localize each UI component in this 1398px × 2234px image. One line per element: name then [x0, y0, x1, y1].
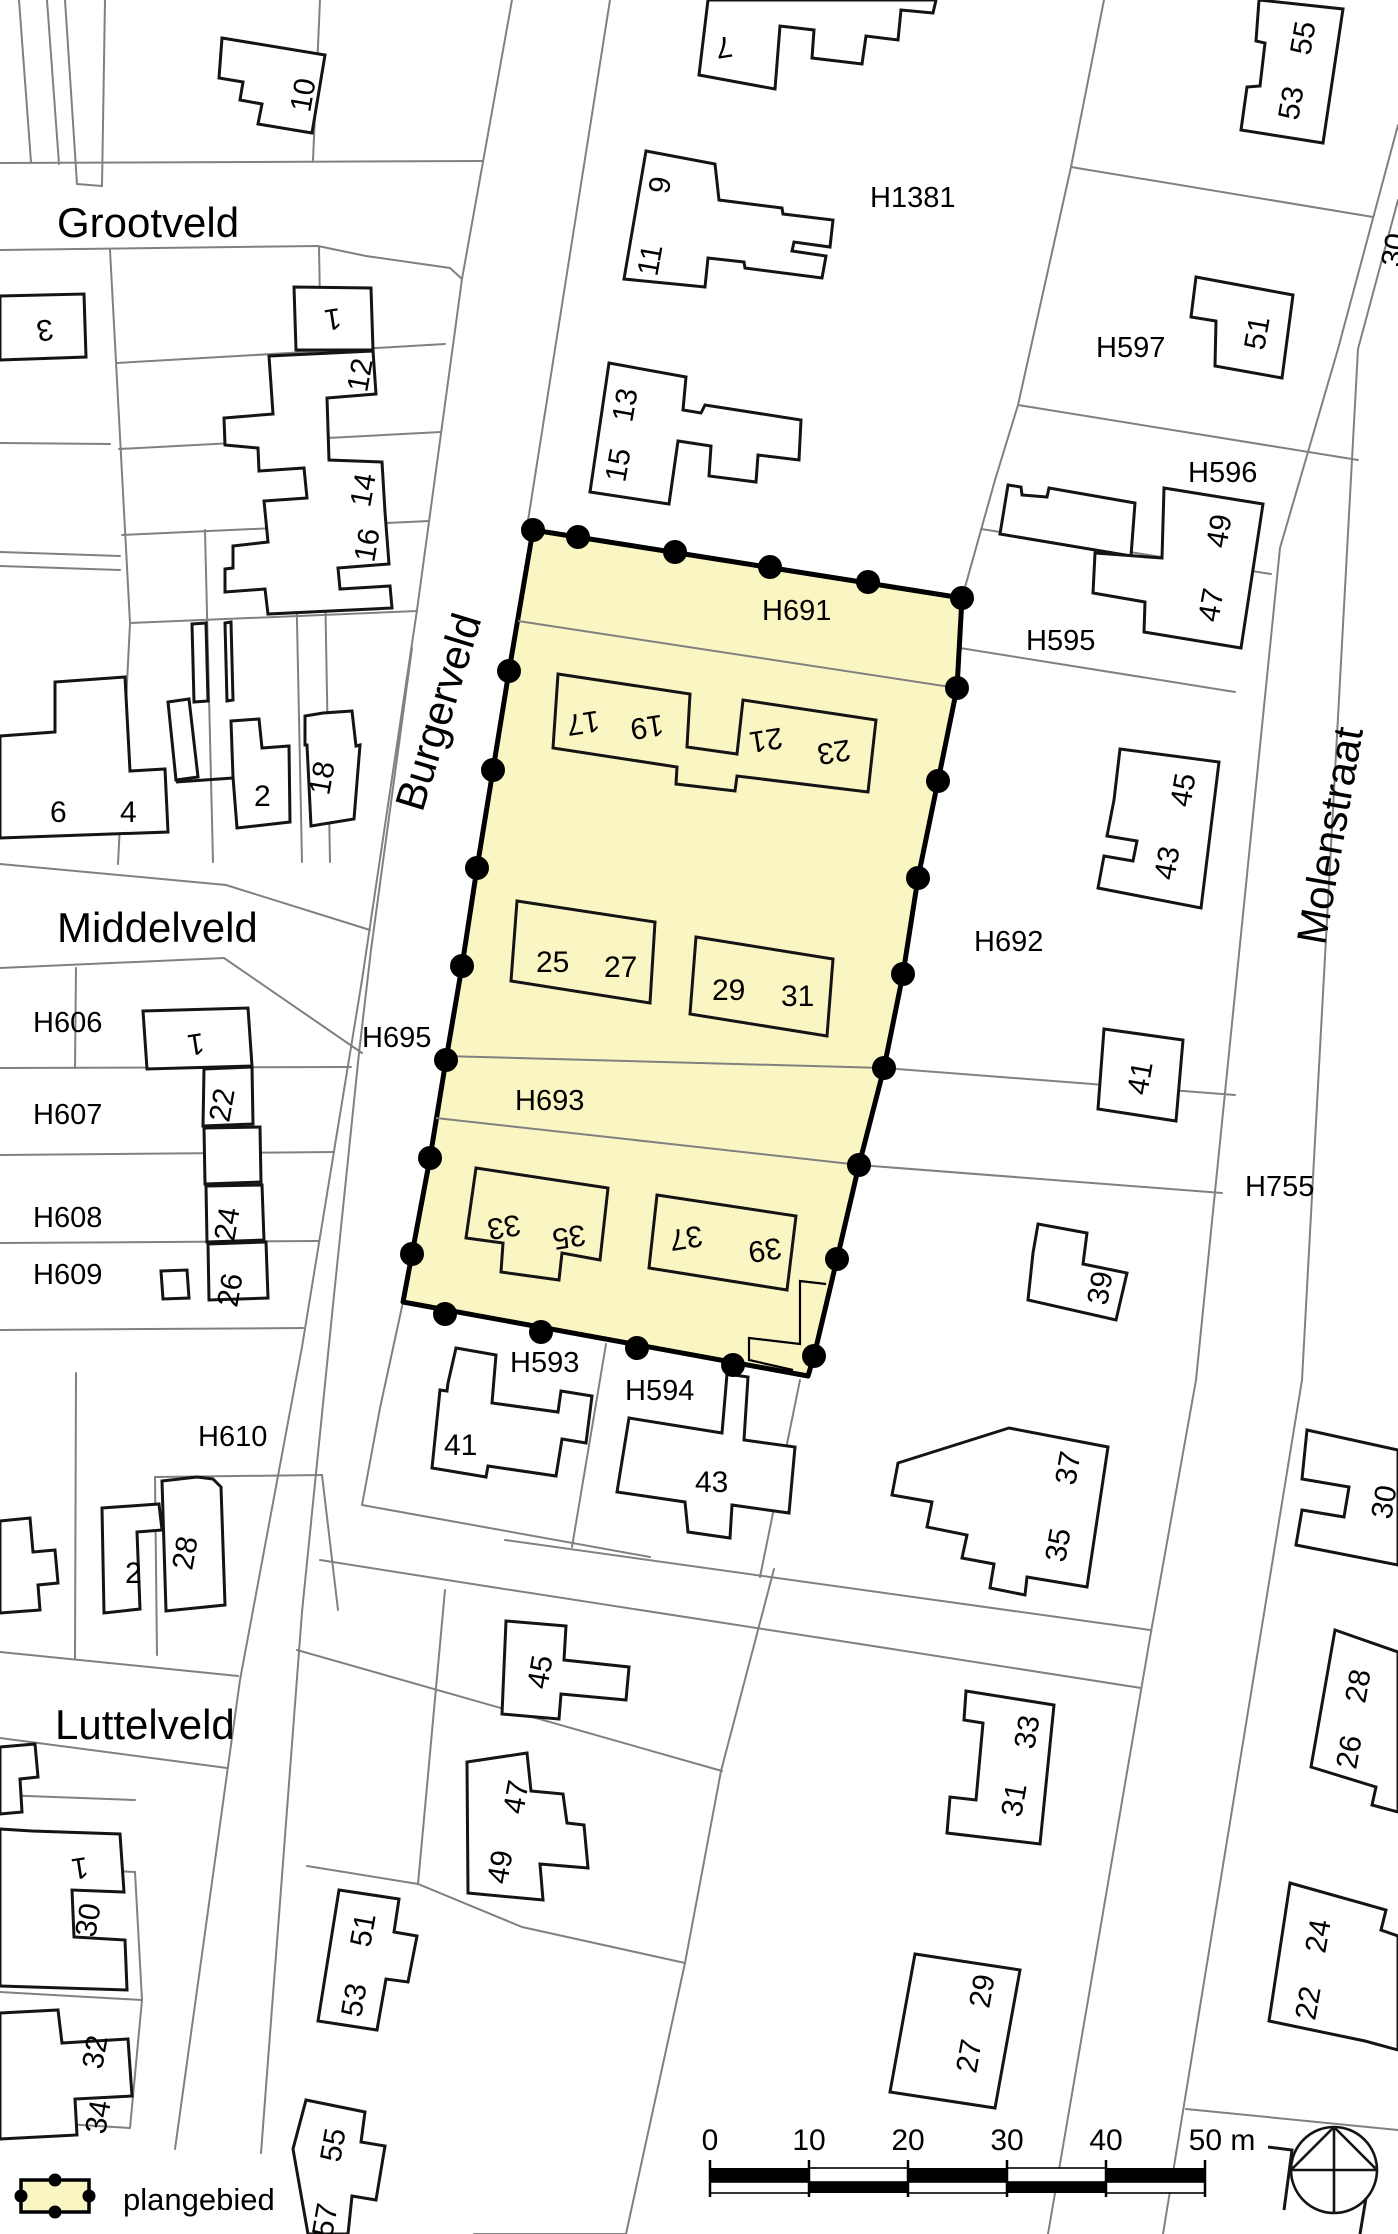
svg-text:28: 28: [166, 1534, 204, 1573]
svg-text:32: 32: [76, 2033, 114, 2072]
svg-text:35: 35: [550, 1218, 588, 1256]
svg-text:50 m: 50 m: [1189, 2124, 1256, 2157]
svg-text:H608: H608: [33, 1202, 102, 1234]
svg-text:Middelveld: Middelveld: [57, 904, 258, 951]
svg-text:35: 35: [1039, 1526, 1077, 1565]
svg-text:13: 13: [606, 386, 644, 425]
svg-text:H606: H606: [33, 1007, 102, 1039]
svg-text:43: 43: [695, 1466, 728, 1499]
svg-text:H692: H692: [974, 926, 1043, 958]
svg-text:30: 30: [69, 1901, 107, 1940]
svg-text:21: 21: [747, 721, 785, 759]
svg-text:51: 51: [344, 1911, 382, 1950]
svg-text:24: 24: [208, 1205, 246, 1244]
svg-text:51: 51: [1238, 314, 1276, 353]
svg-text:H610: H610: [198, 1421, 267, 1453]
svg-text:2: 2: [125, 1557, 142, 1590]
svg-text:H755: H755: [1245, 1171, 1314, 1203]
svg-text:45: 45: [521, 1653, 559, 1692]
svg-text:12: 12: [341, 356, 379, 395]
svg-text:49: 49: [481, 1848, 519, 1887]
svg-text:11: 11: [632, 242, 670, 278]
svg-text:20: 20: [891, 2124, 924, 2157]
svg-text:14: 14: [344, 471, 382, 510]
svg-text:30: 30: [1365, 1483, 1398, 1522]
svg-text:40: 40: [1089, 2124, 1122, 2157]
svg-text:H596: H596: [1188, 457, 1257, 489]
svg-text:41: 41: [1121, 1059, 1159, 1098]
svg-text:H695: H695: [362, 1022, 431, 1054]
svg-text:43: 43: [1148, 844, 1186, 883]
svg-text:H593: H593: [510, 1347, 579, 1379]
svg-text:16: 16: [348, 526, 386, 565]
svg-text:41: 41: [444, 1429, 477, 1462]
svg-text:H609: H609: [33, 1259, 102, 1291]
svg-text:31: 31: [995, 1781, 1033, 1820]
svg-text:H607: H607: [33, 1099, 102, 1131]
svg-text:15: 15: [599, 446, 637, 485]
svg-text:45: 45: [1164, 771, 1202, 810]
svg-text:17: 17: [564, 704, 602, 742]
svg-text:39: 39: [746, 1231, 784, 1269]
svg-text:25: 25: [536, 946, 569, 979]
svg-text:H597: H597: [1096, 332, 1165, 364]
svg-text:H691: H691: [762, 595, 831, 627]
svg-text:10: 10: [284, 76, 322, 115]
svg-text:53: 53: [335, 1981, 373, 2020]
svg-text:Luttelveld: Luttelveld: [55, 1701, 235, 1748]
svg-text:22: 22: [1289, 1984, 1327, 2023]
svg-text:47: 47: [1192, 586, 1230, 625]
svg-text:27: 27: [604, 951, 637, 984]
svg-text:37: 37: [667, 1219, 705, 1257]
svg-text:30: 30: [990, 2124, 1023, 2157]
svg-text:26: 26: [211, 1271, 249, 1310]
svg-text:18: 18: [303, 759, 341, 798]
svg-text:29: 29: [963, 1972, 1001, 2011]
svg-text:H693: H693: [515, 1085, 584, 1117]
svg-text:53: 53: [1272, 84, 1310, 123]
svg-text:19: 19: [628, 708, 666, 746]
svg-text:0: 0: [702, 2124, 719, 2157]
svg-text:H595: H595: [1026, 625, 1095, 657]
svg-text:22: 22: [203, 1086, 241, 1125]
svg-text:47: 47: [497, 1778, 535, 1817]
svg-text:24: 24: [1299, 1917, 1337, 1956]
svg-text:23: 23: [815, 733, 853, 771]
svg-text:28: 28: [1339, 1667, 1377, 1706]
svg-text:29: 29: [712, 974, 745, 1007]
svg-text:34: 34: [79, 2098, 117, 2137]
svg-text:55: 55: [314, 2126, 352, 2165]
svg-text:H594: H594: [625, 1375, 694, 1407]
svg-text:33: 33: [485, 1208, 523, 1246]
svg-text:2: 2: [254, 780, 271, 813]
svg-text:6: 6: [50, 796, 67, 829]
svg-text:plangebied: plangebied: [123, 2182, 275, 2217]
svg-text:57: 57: [306, 2201, 344, 2234]
svg-text:26: 26: [1330, 1733, 1368, 1772]
svg-text:27: 27: [950, 2037, 988, 2076]
svg-text:33: 33: [1008, 1713, 1046, 1752]
svg-text:31: 31: [781, 980, 814, 1013]
svg-text:37: 37: [1049, 1449, 1087, 1488]
svg-text:Grootveld: Grootveld: [57, 199, 239, 246]
svg-text:49: 49: [1200, 512, 1238, 551]
svg-text:H1381: H1381: [870, 182, 955, 214]
svg-text:55: 55: [1284, 19, 1322, 58]
svg-text:4: 4: [120, 796, 137, 829]
svg-text:10: 10: [792, 2124, 825, 2157]
svg-text:39: 39: [1081, 1269, 1119, 1308]
